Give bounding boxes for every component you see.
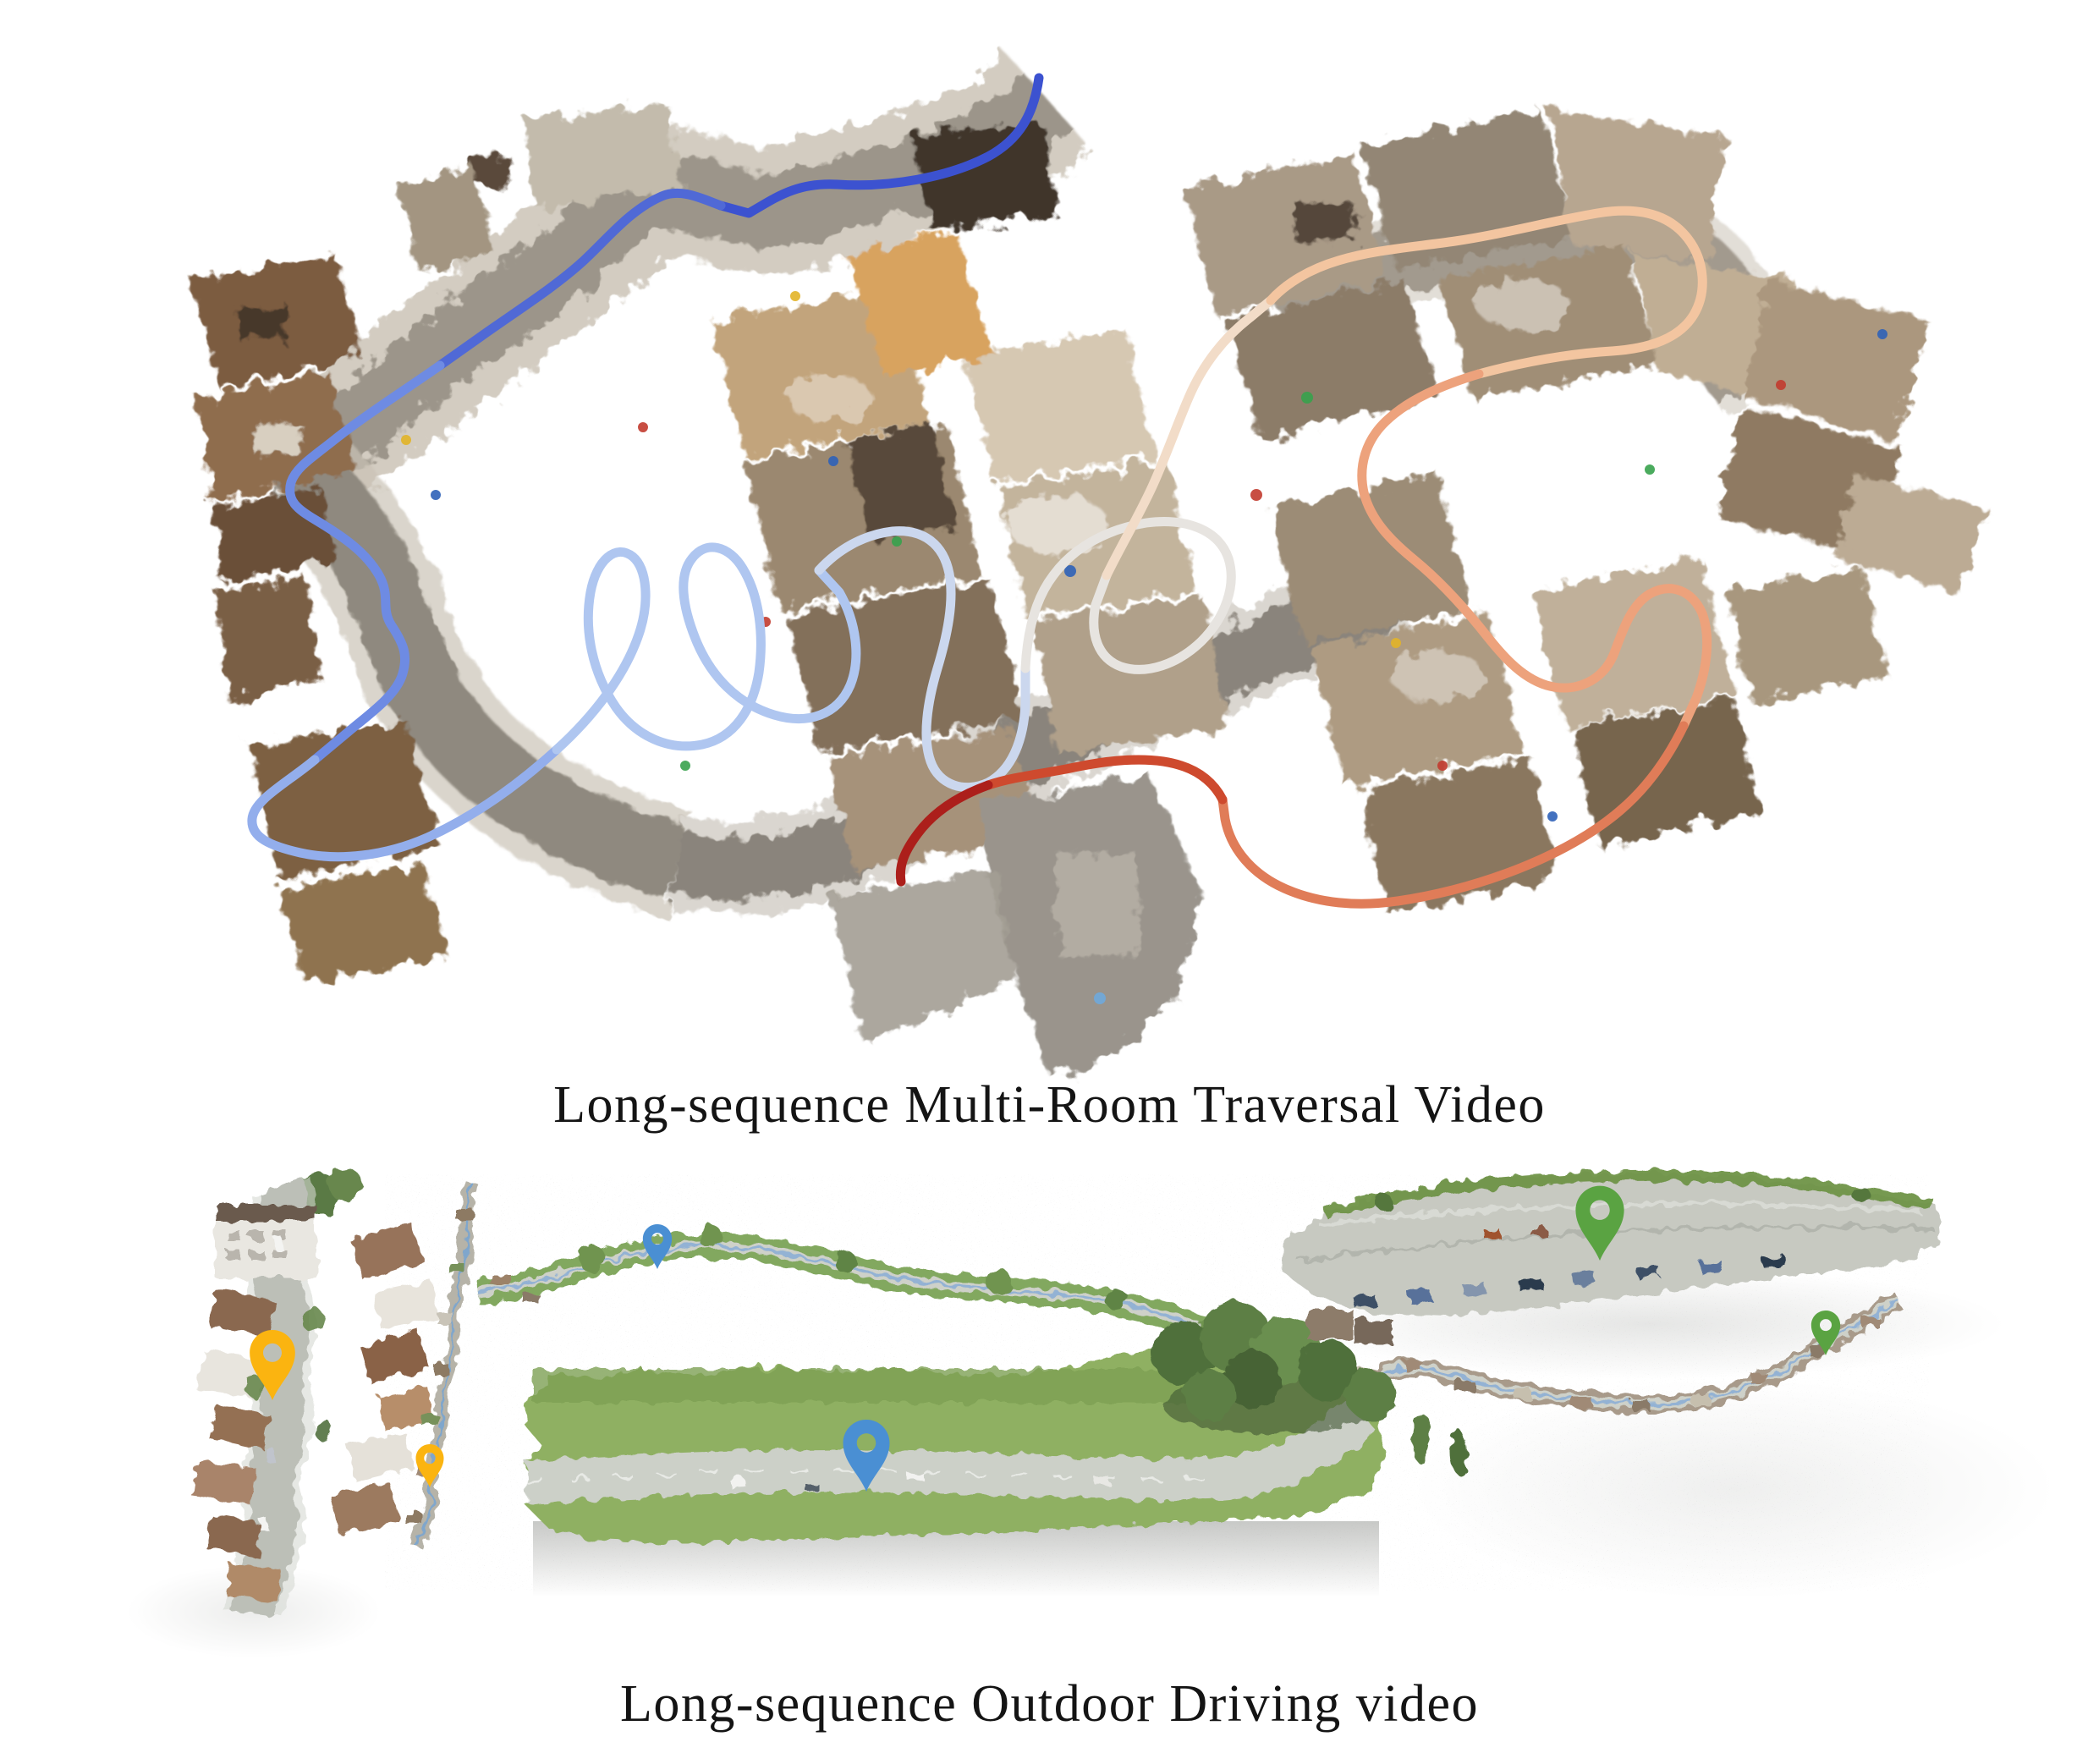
indoor-pointcloud-map bbox=[190, 78, 1988, 1074]
room-blob bbox=[279, 863, 448, 981]
room-blob bbox=[829, 871, 1015, 1041]
figure-graphics bbox=[0, 0, 2099, 1764]
caption-outdoor: Long-sequence Outdoor Driving video bbox=[0, 1675, 2099, 1733]
room-blob bbox=[1548, 110, 1726, 262]
room-blob bbox=[216, 575, 321, 702]
room-blob bbox=[1032, 596, 1227, 753]
shadow bbox=[1413, 1379, 2056, 1599]
outdoor-pointcloud-strips bbox=[127, 1168, 2056, 1658]
caption-indoor: Long-sequence Multi-Room Traversal Video bbox=[0, 1076, 2099, 1134]
indoor-rooms bbox=[190, 102, 1988, 1074]
room-blob bbox=[525, 106, 681, 207]
room-blob bbox=[1726, 567, 1887, 702]
figure-canvas: Long-sequence Multi-Room Traversal Video… bbox=[0, 0, 2099, 1764]
